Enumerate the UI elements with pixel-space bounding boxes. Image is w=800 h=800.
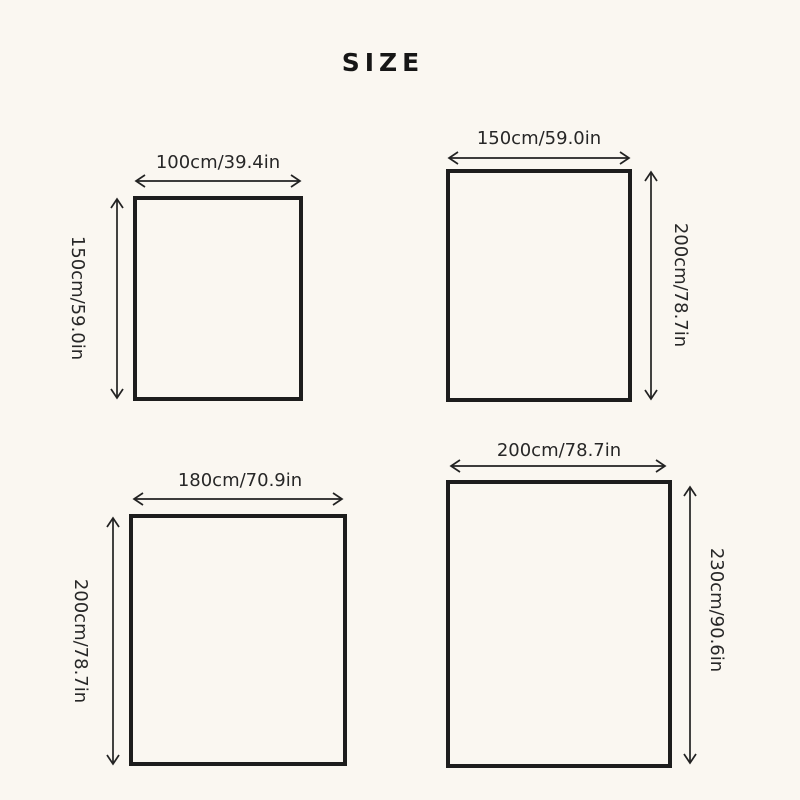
blanket-outline bbox=[129, 514, 347, 766]
height-arrow-icon bbox=[109, 196, 125, 401]
width-arrow-icon bbox=[448, 458, 668, 474]
blanket-outline bbox=[446, 169, 632, 402]
height-arrow-icon bbox=[105, 515, 121, 767]
width-arrow-icon bbox=[133, 173, 303, 189]
width-arrow-icon bbox=[131, 491, 345, 507]
height-dimension-label: 150cm/59.0in bbox=[66, 236, 88, 360]
width-dimension-label: 150cm/59.0in bbox=[477, 128, 601, 150]
width-dimension-label: 180cm/70.9in bbox=[178, 470, 302, 492]
width-arrow-icon bbox=[446, 150, 632, 166]
blanket-outline bbox=[133, 196, 303, 401]
height-dimension-label: 230cm/90.6in bbox=[705, 548, 727, 672]
size-diagram: SIZE 100cm/39.4in 150cm/59.0in 150cm/59.… bbox=[0, 0, 800, 800]
width-dimension-label: 100cm/39.4in bbox=[156, 152, 280, 174]
height-dimension-label: 200cm/78.7in bbox=[669, 223, 691, 347]
height-arrow-icon bbox=[682, 484, 698, 766]
page-title: SIZE bbox=[342, 48, 425, 77]
blanket-outline bbox=[446, 480, 672, 768]
height-dimension-label: 200cm/78.7in bbox=[69, 579, 91, 703]
height-arrow-icon bbox=[643, 169, 659, 402]
